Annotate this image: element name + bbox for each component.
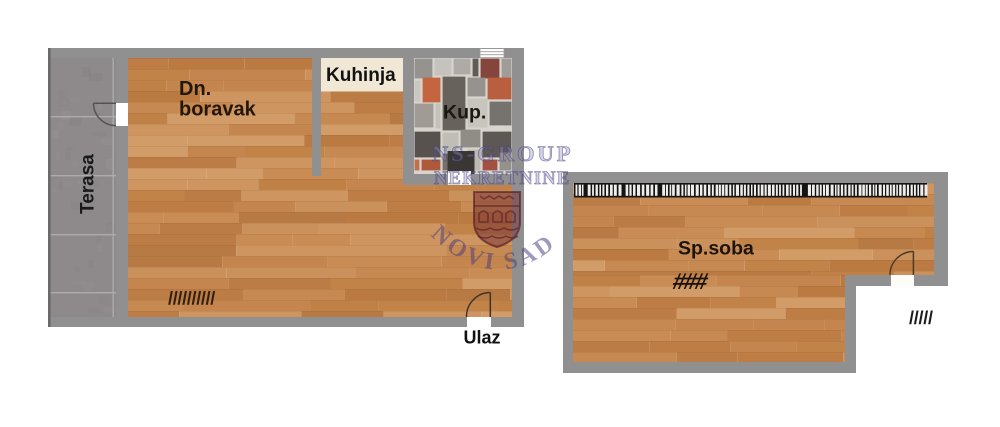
- svg-text:Dn.: Dn.: [179, 78, 211, 100]
- svg-text:Terasa: Terasa: [78, 154, 99, 214]
- svg-text:Kup.: Kup.: [443, 102, 486, 124]
- svg-text:Sp.soba: Sp.soba: [678, 237, 754, 259]
- svg-text://////////: //////////: [168, 289, 215, 309]
- svg-text:NS-GROUP: NS-GROUP: [432, 141, 574, 166]
- svg-text:Kuhinja: Kuhinja: [326, 65, 396, 86]
- svg-text:boravak: boravak: [179, 99, 257, 121]
- svg-text:NEKRETNINE: NEKRETNINE: [434, 169, 570, 189]
- svg-text://///: /////: [909, 308, 933, 328]
- svg-text:Ulaz: Ulaz: [464, 327, 501, 347]
